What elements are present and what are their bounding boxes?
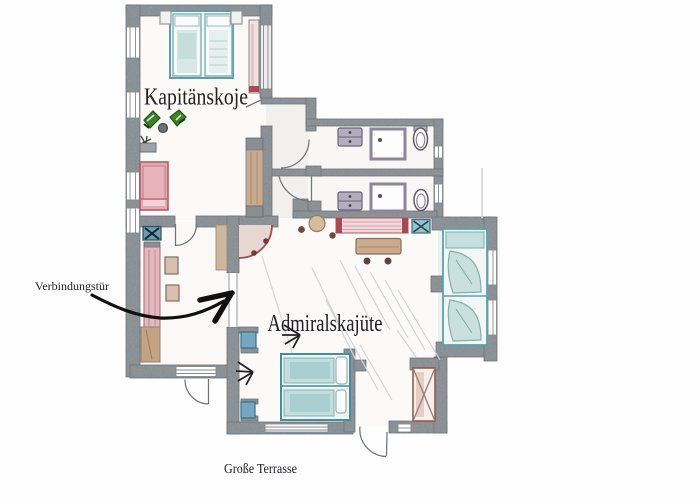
- svg-text:Kapitänskoje: Kapitänskoje: [144, 84, 248, 111]
- svg-text:Große Terrasse: Große Terrasse: [224, 462, 297, 477]
- svg-text:Verbindungstür: Verbindungstür: [35, 279, 109, 293]
- svg-text:Admiralskajüte: Admiralskajüte: [268, 310, 383, 337]
